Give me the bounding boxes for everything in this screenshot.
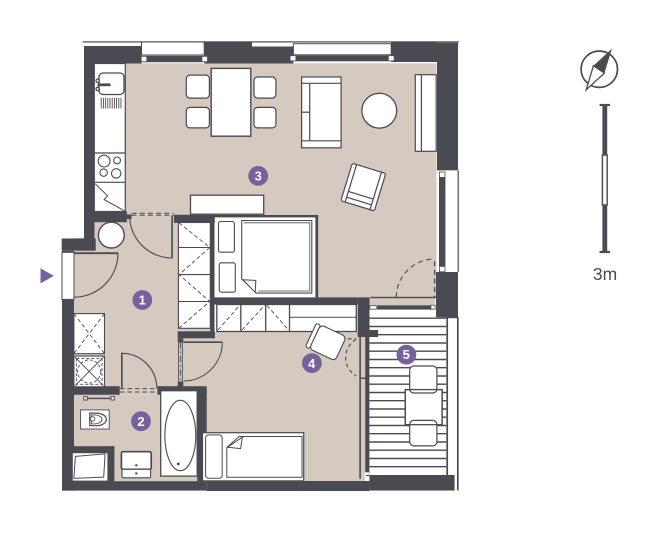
svg-text:3m: 3m	[593, 264, 617, 284]
svg-text:3: 3	[255, 169, 262, 184]
svg-text:5: 5	[403, 347, 410, 362]
svg-text:1: 1	[139, 293, 146, 308]
svg-text:4: 4	[308, 356, 316, 371]
svg-text:2: 2	[137, 414, 144, 429]
